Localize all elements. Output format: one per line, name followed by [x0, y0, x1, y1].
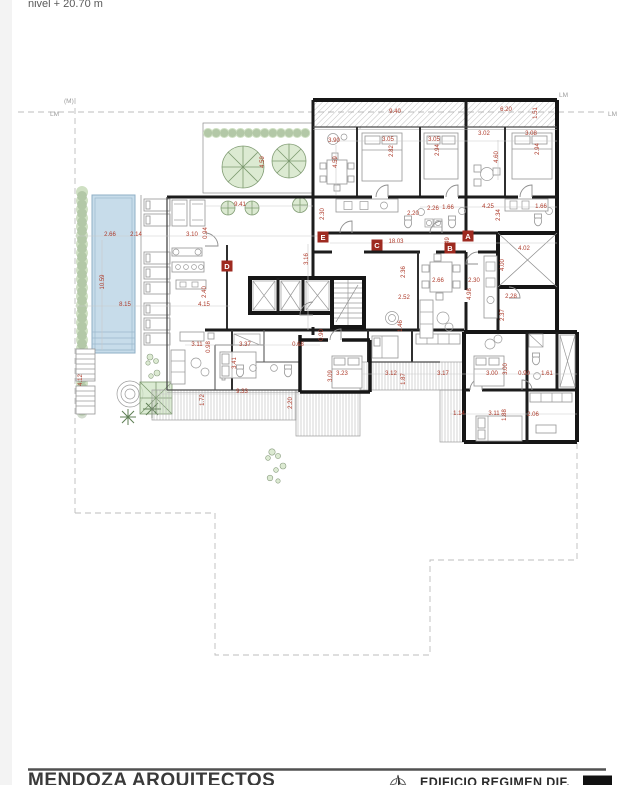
- grid-bubble-label: C: [374, 241, 380, 250]
- bed: [476, 416, 522, 441]
- dimension-label: 2.66: [104, 232, 116, 238]
- grid-bubble-label: A: [465, 232, 471, 241]
- dimension-label: 9.40: [389, 109, 401, 115]
- dimension-label: 4.98: [467, 288, 473, 300]
- dimension-label: 1.72: [200, 394, 206, 406]
- dimension-label: 1.66: [535, 204, 547, 210]
- bed: [372, 336, 398, 358]
- dimension-label: 2.30: [468, 278, 480, 284]
- footer: MENDOZA ARQUITECTOS EDIFICIO REGIMEN DIF…: [28, 770, 612, 785]
- boundary-label: LM: [50, 111, 59, 118]
- dimension-label: 2.82: [389, 145, 395, 157]
- dimension-label: 3.23: [336, 371, 348, 377]
- dimension-label: 4.59: [260, 156, 266, 168]
- dimension-label: 1.61: [541, 371, 553, 377]
- south-terrace-left: [152, 390, 296, 420]
- stair-core: [332, 278, 364, 327]
- dimension-label: 1.87: [401, 373, 407, 385]
- jacuzzi: [117, 381, 143, 407]
- gym-equipment: [172, 200, 206, 289]
- dimension-label: 4.15: [198, 302, 210, 308]
- dimension-label: 4.59: [333, 156, 339, 168]
- grid-bubble-label: B: [447, 244, 453, 253]
- dimension-label: 2.94: [535, 143, 541, 155]
- dimension-label: 2.52: [398, 295, 410, 301]
- project-title: EDIFICIO REGIMEN DIF.: [420, 776, 570, 785]
- dimension-label: 18.03: [388, 239, 404, 245]
- lounge-chairs: [144, 199, 170, 345]
- south-terrace-mid: [296, 392, 360, 436]
- boundary-label: (M): [64, 98, 74, 105]
- level-note: nivel + 20.70 m: [28, 0, 103, 10]
- dimension-label: 3.41: [232, 357, 238, 369]
- dimension-label: 0.90: [319, 329, 325, 341]
- dimension-label: 4.60: [494, 151, 500, 163]
- closet: [530, 393, 572, 402]
- dimension-label: 1.14: [453, 411, 465, 417]
- dimension-label: 9.41: [234, 202, 246, 208]
- dimension-label: 0.90: [518, 371, 530, 377]
- dimension-label: 3.00: [486, 371, 498, 377]
- dimension-label: 4.02: [518, 246, 530, 252]
- dimension-label: 6.20: [500, 107, 512, 113]
- dimension-label: 3.08: [525, 131, 537, 137]
- dimension-label: 1.51: [533, 107, 539, 119]
- dimension-label: 10.59: [100, 274, 106, 290]
- dimension-label: 3.12: [385, 371, 397, 377]
- dimension-label: 2.30: [320, 208, 326, 220]
- dimension-label: 2.36: [401, 266, 407, 278]
- dimension-label: 0.94: [203, 227, 209, 239]
- dimension-label: 3.17: [437, 371, 449, 377]
- dimension-label: 0.98: [206, 341, 212, 353]
- closet: [560, 335, 575, 387]
- dimension-label: 2.28: [505, 294, 517, 300]
- dimension-label: 4.12: [78, 374, 84, 386]
- dimension-label: 3.00: [503, 363, 509, 375]
- dimension-label: 1.66: [442, 205, 454, 211]
- dimension-label: 2.94: [435, 144, 441, 156]
- grid-bubble-label: D: [224, 262, 230, 271]
- roof-garden: [203, 123, 313, 215]
- shower: [529, 334, 543, 347]
- dimension-label: 1.88: [502, 409, 508, 421]
- dimension-label: 2.34: [496, 209, 502, 221]
- dimension-label: 3.02: [478, 131, 490, 137]
- dimension-label: 3.16: [304, 253, 310, 265]
- dimension-label: 3.11: [191, 342, 203, 348]
- dimension-label: 2.20: [407, 211, 419, 217]
- kitchen-counter: [336, 199, 398, 212]
- dimension-label: 2.37: [500, 309, 506, 321]
- dimension-label: 2.40: [202, 286, 208, 298]
- dimension-label: 0.68: [292, 342, 304, 348]
- bench: [536, 425, 556, 433]
- boundary-label: LM: [608, 111, 617, 118]
- living-room: [171, 332, 225, 384]
- dimension-label: 3.10: [186, 232, 198, 238]
- dimension-label: 4.25: [482, 204, 494, 210]
- swimming-pool: [92, 195, 135, 353]
- sitting-area: [474, 165, 500, 186]
- property-boundary: [18, 98, 604, 655]
- dimension-label: 4.00: [500, 259, 506, 271]
- dimension-label: 1.46: [398, 320, 404, 332]
- dimension-label: 3.05: [428, 137, 440, 143]
- dimension-label: 2.14: [130, 232, 142, 238]
- dimension-label: 8.15: [119, 302, 131, 308]
- dimension-label: 2.26: [427, 206, 439, 212]
- dining-set: [422, 254, 460, 300]
- dimension-label: 3.90: [328, 138, 340, 144]
- kitchen-counter: [484, 256, 497, 318]
- balcony-terrace: [313, 100, 557, 127]
- elevator-core: [250, 278, 332, 313]
- living-room: [386, 300, 454, 338]
- dimension-label: 3.37: [239, 342, 251, 348]
- floorplan-sheet: (M)LMLMLM 9.406.201.513.903.052.823.052.…: [0, 0, 636, 785]
- dimension-label: 9.33: [236, 389, 248, 395]
- dimension-label: 2.06: [527, 412, 539, 418]
- sheet-title: MENDOZA ARQUITECTOS: [28, 770, 275, 785]
- boundary-label: LM: [559, 92, 568, 99]
- page-edge: [0, 0, 12, 785]
- grid-bubble-label: E: [320, 233, 325, 242]
- dimension-label: 3.09: [328, 370, 334, 382]
- side-table: [485, 339, 495, 349]
- logo-block: [583, 776, 612, 785]
- north-compass-icon: [387, 775, 409, 785]
- dimension-label: 2.20: [288, 397, 294, 409]
- dimension-label: 2.66: [432, 278, 444, 284]
- dimension-label: 3.05: [382, 137, 394, 143]
- bed: [512, 133, 552, 179]
- dimension-label: 3.11: [488, 411, 500, 417]
